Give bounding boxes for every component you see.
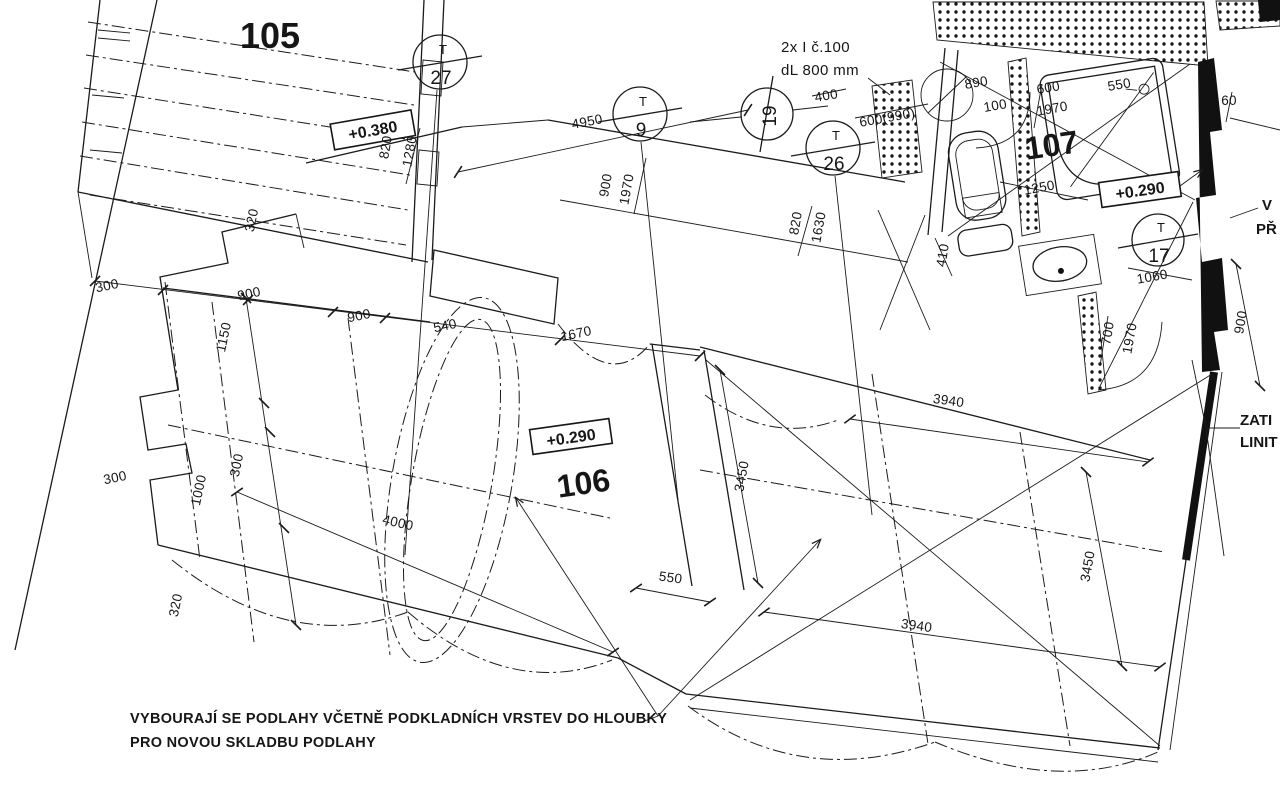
axis-27-number: 27 bbox=[430, 68, 451, 89]
demolition-note-line1: VYBOURAJÍ SE PODLAHY VČETNĚ PODKLADNÍCH … bbox=[130, 709, 667, 727]
dim-820-a: 820 bbox=[376, 134, 395, 160]
dim-100: 100 bbox=[982, 96, 1008, 115]
demolition-note-line2: PRO NOVOU SKLADBU PODLAHY bbox=[130, 735, 376, 751]
room-107-label: 107 bbox=[1023, 124, 1081, 167]
dim-1670: 1670 bbox=[559, 323, 593, 344]
demolition-cross-right-room bbox=[690, 360, 1212, 746]
dim-1630: 1630 bbox=[808, 211, 828, 244]
axis-19-number: 19 bbox=[760, 105, 781, 126]
dim-1970-c: 1970 bbox=[1119, 322, 1139, 355]
axis-17-number: 17 bbox=[1148, 246, 1169, 267]
dim-4000: 4000 bbox=[381, 512, 415, 534]
axis-9-number: 9 bbox=[636, 120, 647, 141]
dim-1060: 1060 bbox=[1136, 266, 1169, 286]
dim-820-b: 820 bbox=[786, 210, 805, 236]
site-boundary bbox=[15, 0, 157, 650]
dim-300-c: 300 bbox=[102, 468, 128, 488]
annotation-texts: 2x I č.100 dL 800 mm VYBOURAJÍ SE PODLAH… bbox=[130, 39, 1278, 751]
drain-icon bbox=[1058, 267, 1065, 274]
axis-and-vault-lines bbox=[165, 90, 1164, 771]
dim-60: 60 bbox=[1221, 93, 1237, 108]
dim-900-right: 900 bbox=[1231, 309, 1250, 335]
dim-890: 890 bbox=[963, 73, 989, 92]
dim-3940-a: 3940 bbox=[932, 391, 965, 410]
dim-1970-a: 1970 bbox=[616, 173, 636, 206]
dim-550-a: 550 bbox=[1106, 75, 1132, 94]
beam-note-line2: dL 800 mm bbox=[781, 62, 859, 79]
axis-26-letter: T bbox=[832, 128, 840, 143]
dim-1150: 1150 bbox=[213, 321, 234, 354]
dim-1000: 1000 bbox=[188, 473, 209, 507]
dim-1970-b: 1970 bbox=[1036, 98, 1069, 118]
axis-17-letter: T bbox=[1157, 220, 1165, 235]
room-105-label: 105 bbox=[240, 15, 300, 56]
dim-320-b: 320 bbox=[166, 592, 186, 618]
axis-marker-17: T 17 bbox=[1118, 214, 1198, 267]
cistern bbox=[957, 223, 1014, 257]
floor-plan-drawing: T 27 T 9 19 T 26 T 17 105 106 107 +0.380 bbox=[0, 0, 1280, 793]
edge-note-bottom-line2: LINIT bbox=[1240, 434, 1278, 451]
axis-9-letter: T bbox=[639, 94, 647, 109]
right-room-walls bbox=[686, 347, 1222, 762]
axis-27-letter: T bbox=[439, 42, 447, 57]
dim-320-a: 320 bbox=[242, 207, 262, 233]
dim-400: 400 bbox=[813, 86, 839, 105]
edge-note-top-line1: V bbox=[1262, 197, 1272, 214]
dotted-pier bbox=[872, 80, 922, 178]
dim-3450-b: 3450 bbox=[1077, 550, 1097, 583]
dim-550-b: 550 bbox=[658, 568, 683, 586]
floor-plan-page: T 27 T 9 19 T 26 T 17 105 106 107 +0.380 bbox=[0, 0, 1280, 793]
axis-26-number: 26 bbox=[823, 154, 844, 175]
room-106-label: 106 bbox=[555, 462, 613, 505]
sink-fixture bbox=[1019, 234, 1102, 295]
dim-700: 700 bbox=[1098, 320, 1117, 346]
beam-note-line1: 2x I č.100 bbox=[781, 39, 850, 56]
edge-note-top-line2: PŘ bbox=[1256, 220, 1277, 238]
dim-600: 600 bbox=[1035, 78, 1061, 97]
axis-marker-9: T 9 bbox=[598, 87, 682, 141]
edge-note-bottom-line1: ZATI bbox=[1240, 412, 1272, 429]
dim-3450-a: 3450 bbox=[731, 460, 751, 493]
dim-410: 410 bbox=[933, 242, 952, 268]
dim-900-c: 900 bbox=[346, 306, 372, 326]
dim-540: 540 bbox=[432, 316, 458, 336]
dim-3940-b: 3940 bbox=[900, 616, 933, 635]
dim-900-a: 900 bbox=[596, 172, 615, 198]
dim-300-b: 300 bbox=[227, 452, 247, 478]
